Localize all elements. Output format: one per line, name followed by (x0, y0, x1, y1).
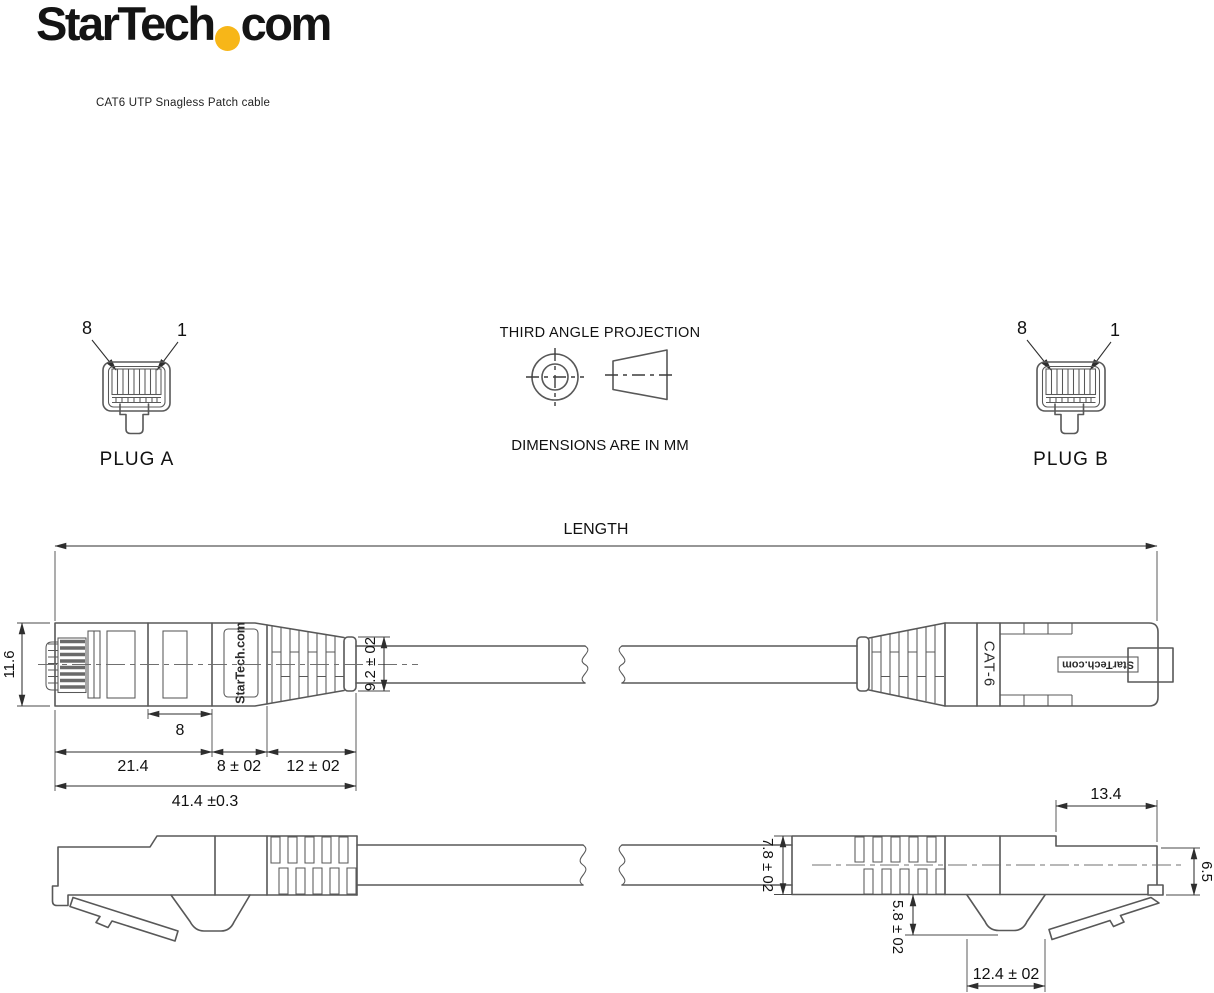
bottom-right-latch (1049, 898, 1159, 940)
bottom-left-body-outline (53, 836, 358, 906)
dim-7-8-text: 7.8 ± 02 (759, 838, 776, 892)
dim-11-6-text: 11.6 (1, 650, 18, 678)
plug-b-label: PLUG B (1033, 449, 1109, 470)
top-cable-break-left (582, 646, 588, 683)
dim-41-4-text: 41.4 ±0.3 (172, 793, 239, 810)
dim-21-4-text: 21.4 (117, 758, 148, 775)
plug-a-front-view: 8 1 PLUG A (82, 318, 187, 470)
dim-8-text: 8 (176, 722, 185, 739)
plug-b-contact-block (1046, 369, 1096, 395)
top-right-boot-cap (857, 637, 869, 691)
top-right-window-bands (1000, 623, 1072, 706)
plug-a-pin8-label: 8 (82, 318, 92, 338)
top-cable-break-right (619, 646, 625, 683)
plug-b-contacts (1052, 369, 1091, 395)
units-note: DIMENSIONS ARE IN MM (511, 437, 689, 454)
top-right-brand-text: StarTech.com (1062, 659, 1134, 671)
plug-a-contact-band (112, 398, 161, 403)
plug-b-pin8-label: 8 (1017, 318, 1027, 338)
plug-a-pin1-leader (157, 342, 178, 370)
projection-title: THIRD ANGLE PROJECTION (500, 325, 701, 341)
bottom-left-hood (171, 895, 250, 931)
projection-crosshair (526, 348, 584, 406)
dim-13-4-text: 13.4 (1090, 786, 1121, 803)
plug-b-contact-band (1046, 398, 1096, 403)
bottom-cable-break-left (580, 845, 586, 885)
dim-8-02-text: 8 ± 02 (217, 758, 261, 775)
top-right-cable-marking: CAT-6 (981, 641, 998, 687)
plug-b-front-view: 8 1 PLUG B (1017, 318, 1120, 470)
plug-b-pin1-leader (1090, 342, 1111, 370)
length-label: LENGTH (564, 521, 629, 538)
length-dimension: LENGTH (55, 521, 1157, 621)
plug-a-contact-block (112, 369, 161, 395)
top-left-contact-window (58, 638, 86, 693)
dim-12-02-text: 12 ± 02 (286, 758, 339, 775)
top-left-brand-text: StarTech.com (233, 622, 247, 704)
drawing-sheet: StarTechcom CAT6 UTP Snagless Patch cabl… (0, 0, 1214, 993)
top-right-boot-taper (869, 623, 945, 706)
dim-5-8-text: 5.8 ± 02 (889, 900, 906, 954)
top-view: StarTech.com CAT-6 StarTech.com (1, 622, 1173, 810)
third-angle-projection: THIRD ANGLE PROJECTION DIMENSIONS ARE IN… (500, 325, 701, 454)
bottom-left-latch (70, 898, 178, 942)
bottom-left-dividers (215, 836, 357, 895)
plug-a-label: PLUG A (100, 449, 175, 470)
plug-a-cable-tab (120, 404, 149, 434)
plug-b-pin1-label: 1 (1110, 320, 1120, 340)
top-left-pin-ticks (48, 644, 58, 683)
dim-6-5-text: 6.5 (1198, 861, 1214, 882)
bottom-view: 7.8 ± 02 13.4 6.5 5.8 ± 02 12.4 ± 02 (53, 786, 1214, 992)
technical-drawing: 8 1 PLUG A 8 1 PLUG B (0, 0, 1214, 993)
bottom-right-hood (967, 895, 1045, 931)
dim-row1-ext (55, 693, 356, 757)
length-ext-lines (55, 551, 1157, 621)
plug-a-pin1-label: 1 (177, 320, 187, 340)
plug-b-cable-tab (1055, 404, 1084, 434)
bottom-cable-break-right (619, 845, 625, 885)
top-cable-right (622, 646, 857, 683)
dim-9-2-text: 9.2 ± 02 (362, 637, 379, 691)
projection-symbol-icon (526, 348, 676, 406)
plug-a-contacts (118, 369, 157, 395)
bottom-left-boot-slots (271, 837, 356, 894)
top-right-boot-ribs (872, 625, 935, 703)
dim-12-4-text: 12.4 ± 02 (973, 966, 1040, 983)
bottom-cable-left (357, 845, 583, 885)
